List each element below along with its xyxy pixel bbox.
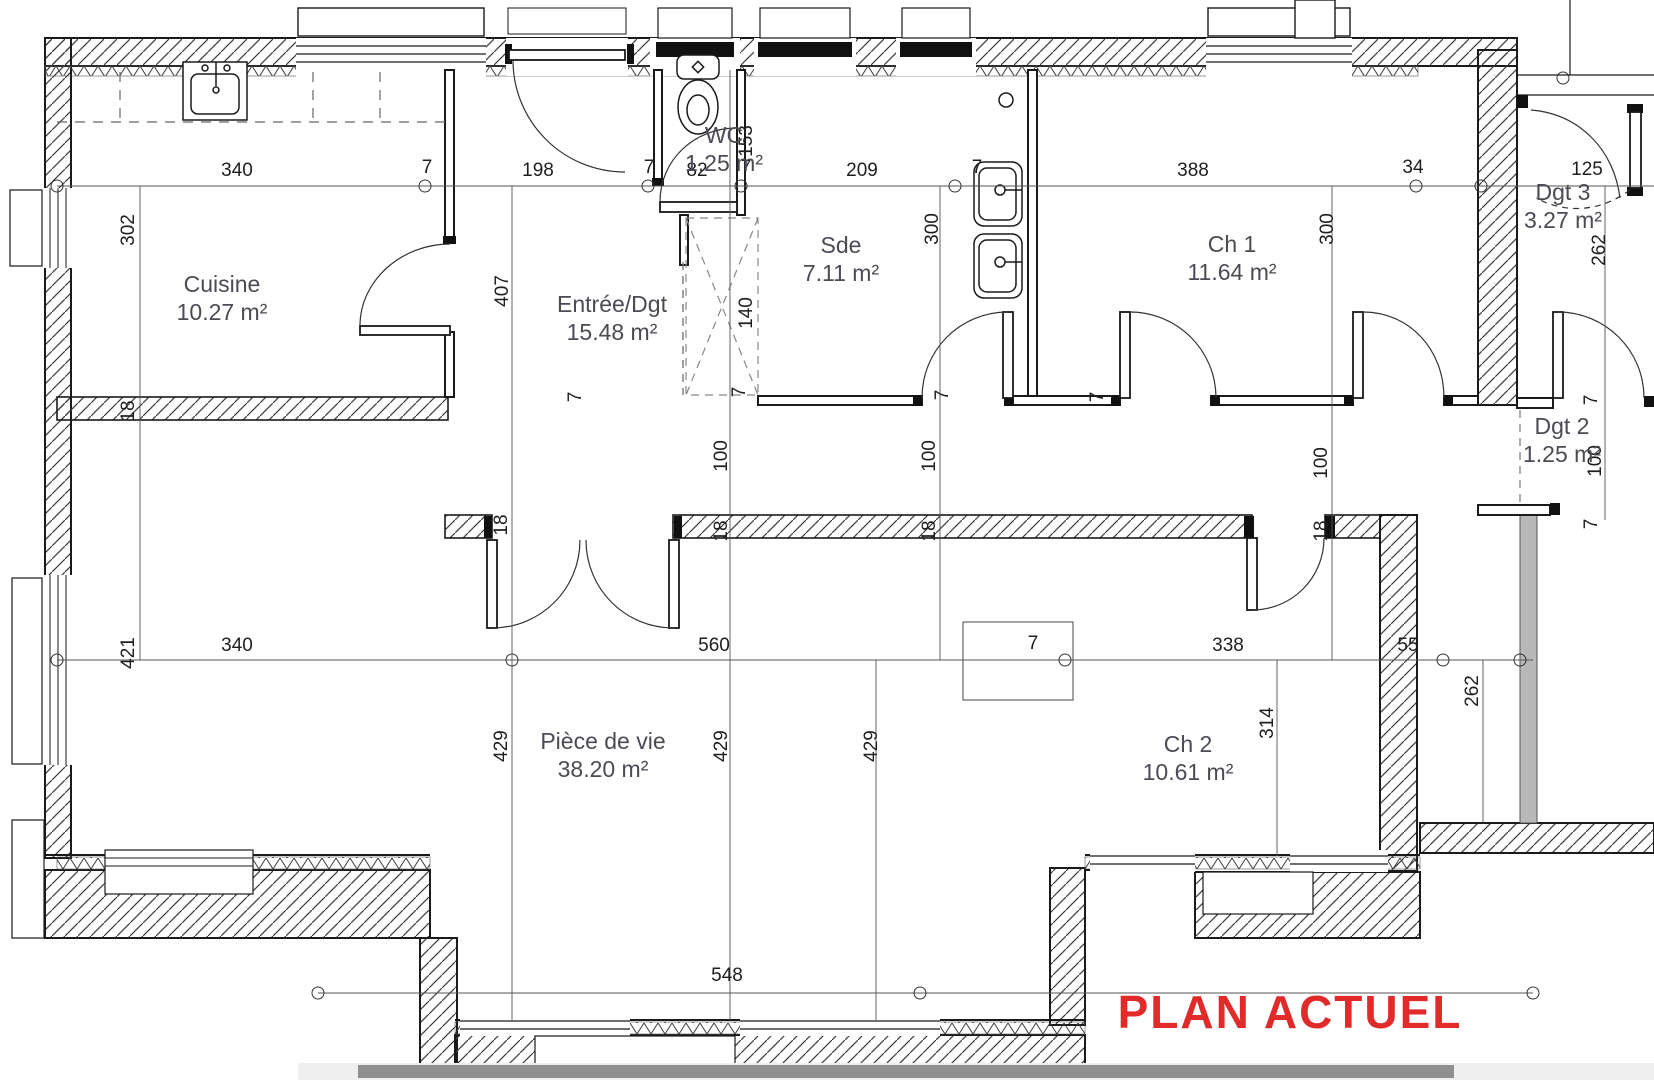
chimney-box (1295, 0, 1335, 38)
room-area-piece-de-vie: 38.20 m² (558, 756, 649, 782)
dimension-label-15: 7 (729, 387, 750, 398)
wc-door-leaf (660, 202, 737, 212)
room-label-sde: Sde (821, 232, 862, 258)
room-area-cuisine: 10.27 m² (177, 299, 268, 325)
plan-title: PLAN ACTUEL (1118, 985, 1463, 1039)
window-box-left-3 (12, 820, 44, 938)
dimension-label-44: 548 (711, 965, 743, 986)
dimension-label-36: 7 (1028, 633, 1039, 654)
room-label-piece-de-vie: Pièce de vie (540, 728, 665, 754)
room-area-entree-dgt: 15.48 m² (567, 319, 658, 345)
dimension-label-7: 7 (972, 157, 983, 178)
kitchen-counter-dashed (57, 72, 445, 122)
dimension-label-23: 100 (919, 440, 940, 472)
room-area-wc: 1.25 m² (685, 150, 763, 176)
dimension-label-9: 34 (1402, 157, 1424, 178)
window-black-sde (900, 42, 972, 57)
window-bottom-left (105, 850, 253, 894)
room-label-dgt3: Dgt 3 (1536, 179, 1591, 205)
ch1-door-leaf (1120, 312, 1130, 398)
room-label-dgt2: Dgt 2 (1535, 413, 1590, 439)
dimension-label-13: 407 (492, 275, 513, 307)
room-label-ch1: Ch 1 (1208, 231, 1257, 257)
sde-door-leaf (1003, 312, 1013, 398)
double-door-left-leaf (487, 540, 497, 628)
dimension-label-2: 198 (522, 160, 554, 181)
doors (360, 50, 1644, 628)
dimension-label-33: 421 (118, 637, 139, 669)
room-area-ch2: 10.61 m² (1143, 759, 1234, 785)
dimension-label-38: 55 (1397, 635, 1418, 656)
dgt2-door-leaf (1553, 312, 1563, 398)
horizontal-scrollbar[interactable] (298, 1063, 1654, 1080)
dimension-label-16: 300 (922, 213, 943, 245)
door-swing-arcs (360, 60, 1644, 628)
dimension-label-19: 7 (1581, 395, 1602, 406)
room-label-ch2: Ch 2 (1164, 731, 1213, 757)
room-area-ch1: 11.64 m² (1187, 259, 1276, 285)
dimension-label-26: 18 (491, 514, 512, 535)
hall-door-leaf (1353, 312, 1363, 398)
dimension-label-29: 18 (1311, 520, 1332, 541)
dimension-label-1: 7 (422, 157, 433, 178)
room-label-wc: WC (705, 122, 743, 148)
dimension-label-27: 18 (711, 520, 732, 541)
dgt3-right-door-leaf (1630, 112, 1641, 188)
dimension-label-34: 340 (221, 635, 253, 656)
window-sill-ch2 (1203, 872, 1313, 914)
dimension-label-18: 262 (1589, 234, 1610, 266)
dimension-label-32: 7 (1087, 392, 1108, 403)
window-sill-bottom (535, 1036, 735, 1066)
room-area-dgt2: 1.25 m² (1523, 441, 1601, 467)
dimension-label-39: 262 (1462, 675, 1483, 707)
ch2-door-leaf (1247, 538, 1257, 610)
scrollbar-thumb[interactable] (358, 1065, 1454, 1078)
dimension-label-3: 7 (644, 157, 655, 178)
dimension-label-28: 18 (919, 520, 940, 541)
dimension-label-17: 300 (1317, 213, 1338, 245)
dimension-label-31: 7 (932, 390, 953, 401)
room-label-cuisine: Cuisine (184, 271, 261, 297)
gray-wall-panel (1520, 515, 1537, 823)
floor-plan-page: 3407198782720973883412530215340714073003… (0, 0, 1654, 1080)
window-box-cuisine (298, 8, 484, 36)
dimension-label-24: 100 (1311, 447, 1332, 479)
annex-boundary-lines (1517, 0, 1654, 95)
dimension-label-0: 340 (221, 160, 253, 181)
ceiling-light-icon (999, 93, 1013, 107)
dimension-label-42: 429 (711, 730, 732, 762)
dimension-label-22: 100 (711, 440, 732, 472)
cuisine-door-leaf (360, 326, 450, 335)
dimension-label-8: 388 (1177, 160, 1209, 181)
entry-door-leaf (509, 50, 625, 60)
double-door-right-leaf (669, 540, 679, 628)
floor-plan-drawing: 3407198782720973883412530215340714073003… (0, 0, 1654, 1080)
dimension-label-40: 314 (1257, 707, 1278, 739)
vanity-sinks-icon (974, 162, 1022, 298)
room-label-entree-dgt: Entrée/Dgt (557, 291, 668, 317)
dimension-label-30: 7 (565, 392, 586, 403)
dimension-label-10: 125 (1571, 159, 1603, 180)
window-black-2 (758, 42, 852, 57)
window-box-left-2 (12, 578, 42, 764)
dimension-label-43: 429 (861, 730, 882, 762)
dimension-label-35: 560 (698, 635, 730, 656)
duct-box (963, 622, 1073, 700)
exterior-walls (45, 38, 1654, 1068)
dimension-label-6: 209 (846, 160, 878, 181)
window-box-left-1 (10, 190, 42, 266)
dimension-label-11: 302 (118, 214, 139, 246)
dimension-label-25: 18 (118, 400, 139, 421)
dimension-label-14: 140 (736, 297, 757, 329)
room-area-sde: 7.11 m² (803, 260, 880, 286)
entry-door-box (508, 8, 626, 34)
room-area-dgt3: 3.27 m² (1524, 207, 1602, 233)
dimension-label-37: 338 (1212, 635, 1244, 656)
kitchen-sink-icon (183, 62, 247, 120)
dimension-label-41: 429 (491, 730, 512, 762)
dimension-label-21: 7 (1581, 519, 1602, 530)
fixtures (57, 55, 1022, 395)
